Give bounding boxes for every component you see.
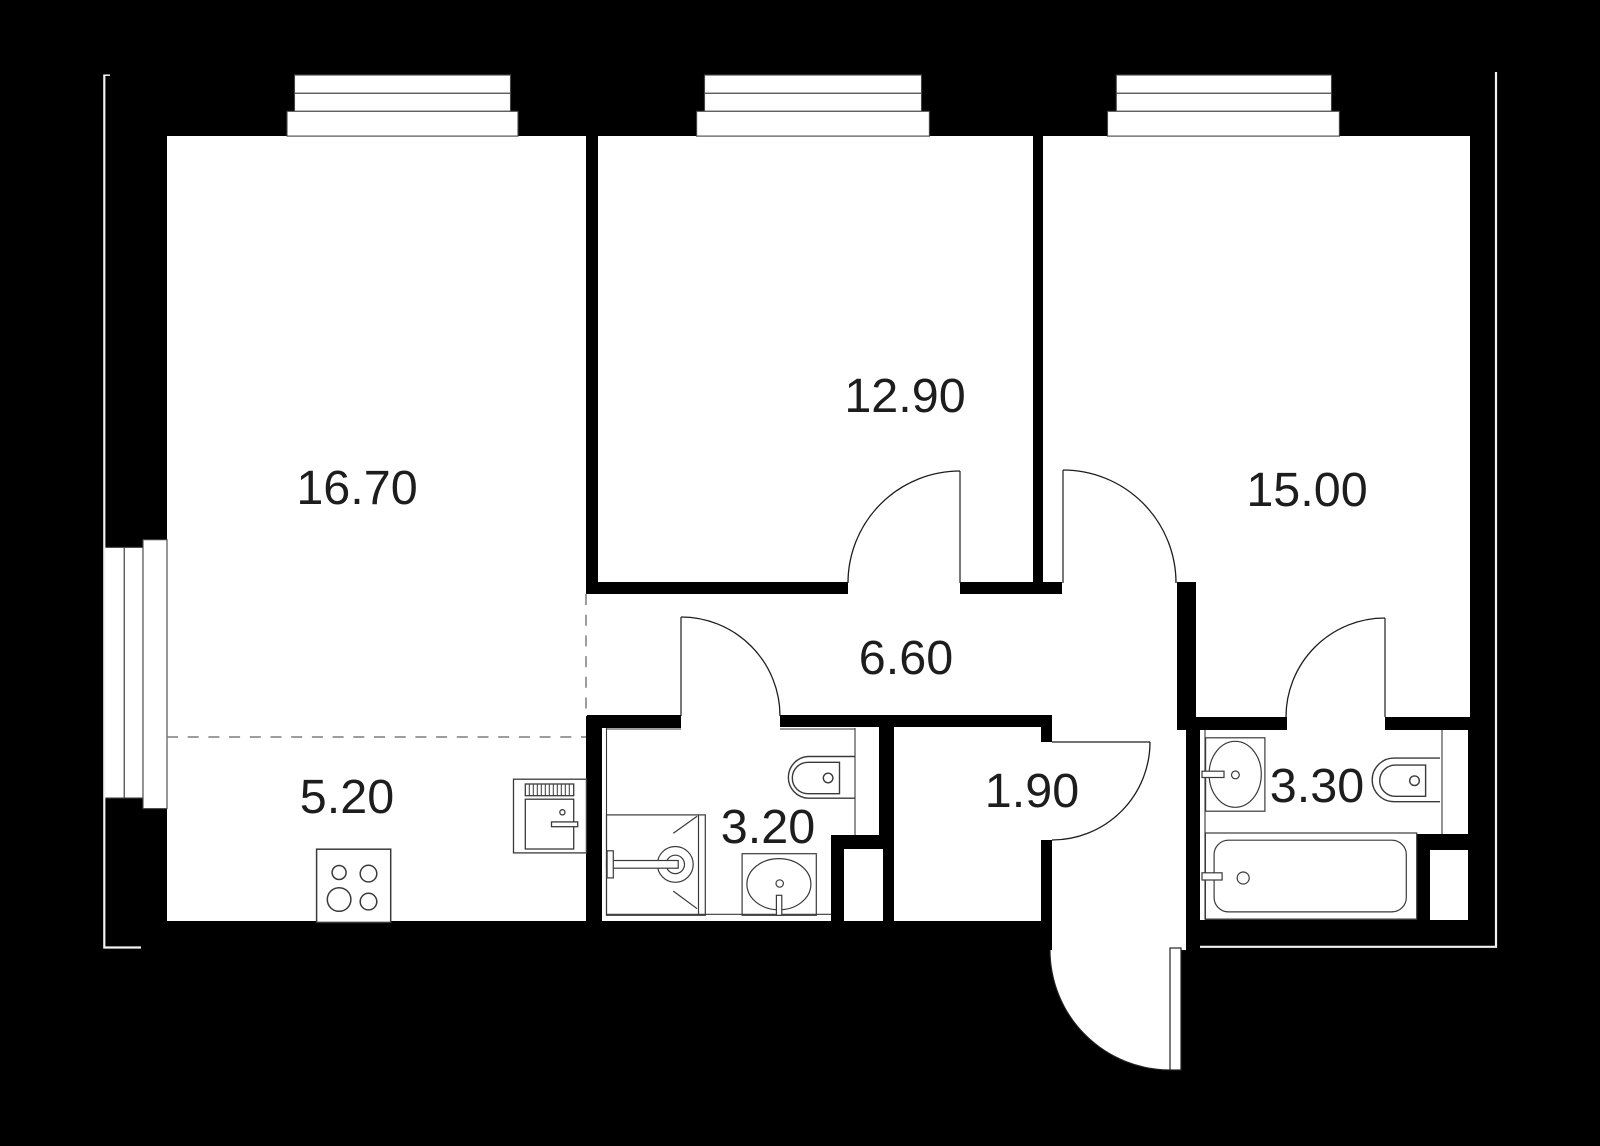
svg-text:5.20: 5.20 xyxy=(300,770,394,824)
svg-text:6.60: 6.60 xyxy=(859,631,953,685)
svg-text:12.90: 12.90 xyxy=(844,369,965,423)
svg-text:3.20: 3.20 xyxy=(721,800,815,854)
svg-text:16.70: 16.70 xyxy=(296,461,417,515)
svg-text:1.90: 1.90 xyxy=(985,764,1079,818)
svg-text:15.00: 15.00 xyxy=(1246,463,1367,517)
svg-text:3.30: 3.30 xyxy=(1270,759,1364,813)
